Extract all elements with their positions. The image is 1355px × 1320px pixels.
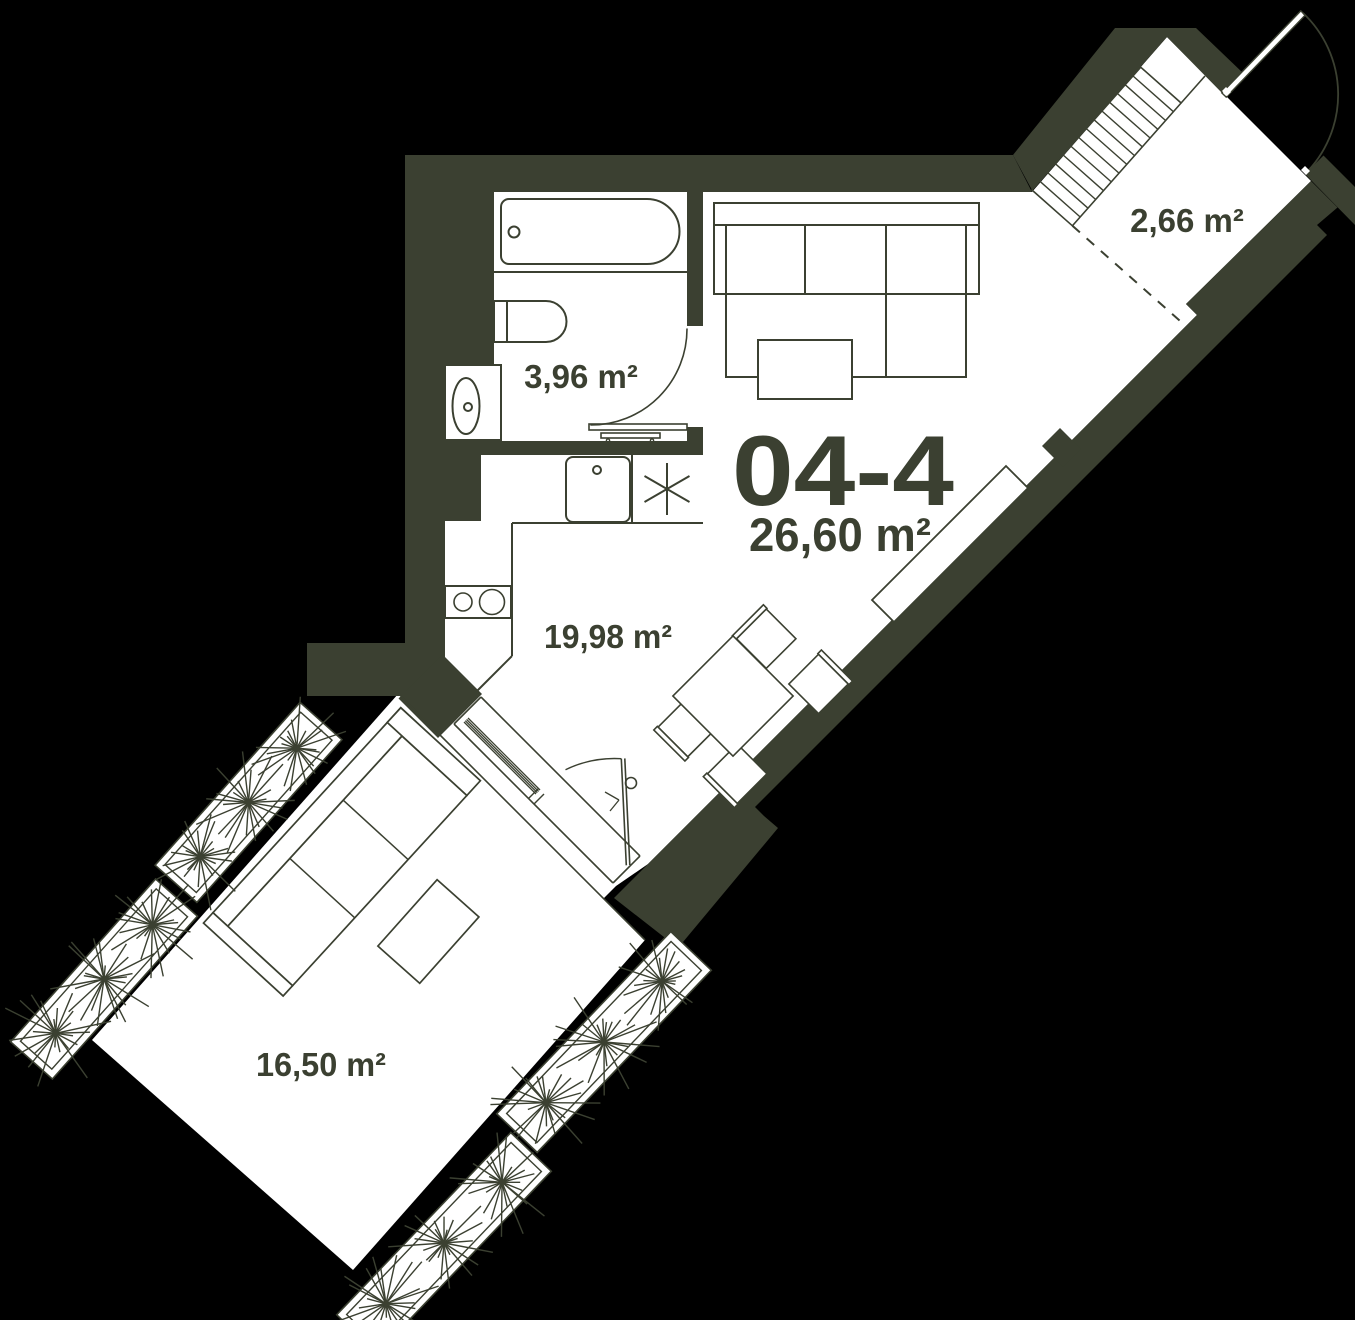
svg-text:3,96 m²: 3,96 m² <box>524 358 638 395</box>
svg-text:19,98 m²: 19,98 m² <box>544 618 672 655</box>
svg-text:16,50 m²: 16,50 m² <box>256 1046 386 1083</box>
svg-text:26,60 m²: 26,60 m² <box>749 508 931 561</box>
svg-text:2,66 m²: 2,66 m² <box>1130 202 1244 239</box>
